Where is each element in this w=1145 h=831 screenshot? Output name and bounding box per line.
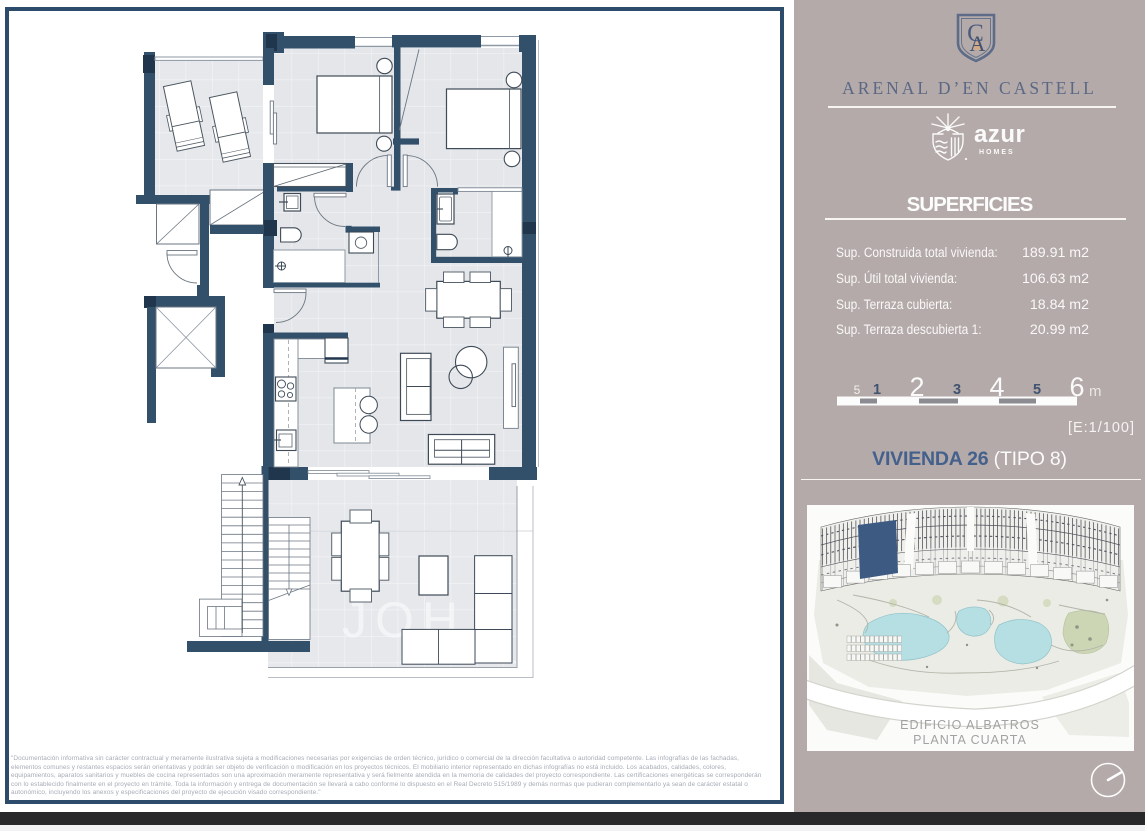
svg-text:azur: azur [974, 121, 1025, 148]
svg-text:m: m [1089, 383, 1102, 400]
svg-text:5: 5 [1033, 382, 1041, 398]
svg-text:HOMES: HOMES [979, 149, 1015, 156]
svg-text:1: 1 [873, 382, 881, 398]
svg-text:EDIFICIO ALBATROS: EDIFICIO ALBATROS [900, 718, 1040, 732]
svg-text:3: 3 [953, 382, 961, 398]
svg-text:5: 5 [854, 383, 861, 397]
svg-text:A: A [970, 31, 986, 56]
svg-text:PLANTA CUARTA: PLANTA CUARTA [913, 733, 1027, 747]
svg-text:[E:1/100]: [E:1/100] [1068, 420, 1135, 436]
